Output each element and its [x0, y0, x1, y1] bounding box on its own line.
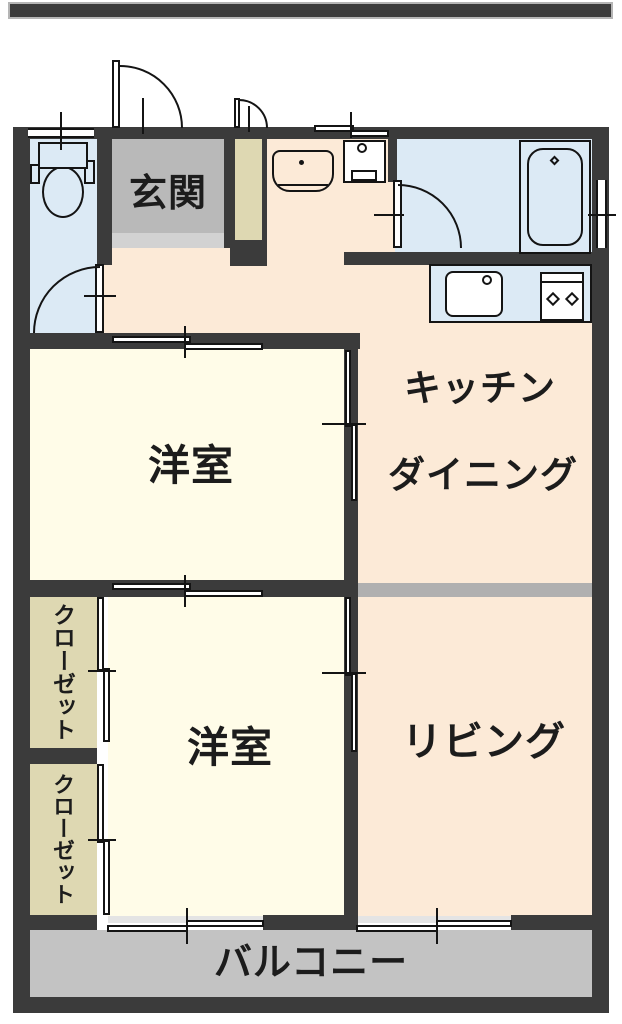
dining-label: ダイニング [388, 457, 578, 494]
living-label: リビング [402, 722, 566, 762]
bedroom1-label: 洋室 [148, 445, 234, 487]
toilet-window-tick [60, 112, 62, 150]
closet1-label: クローゼット [50, 603, 73, 741]
washroom-window-tick [350, 112, 352, 138]
bathroom-door-arc [398, 185, 461, 248]
storage-door-arc [239, 100, 267, 128]
center-door1-tick [322, 423, 366, 425]
toilet-door-arc [34, 267, 100, 333]
bathroom-window-tick [588, 214, 616, 216]
entrance-door-tick [142, 98, 144, 134]
storage-door-tick [248, 106, 250, 132]
closet1-door-tick [88, 670, 116, 672]
bedroom2-door-tick [184, 575, 186, 607]
genkan-label: 玄関 [129, 174, 207, 212]
door-swing-arcs [0, 0, 622, 1024]
closet2-door-tick [88, 839, 116, 841]
bedroom2-window-tick [186, 908, 188, 944]
living-window-tick [436, 908, 438, 944]
entrance-door-arc [120, 66, 182, 128]
floor-plan: 玄関 キッチン ダイニング 洋室 洋室 リビング クローゼット クローゼット バ… [0, 0, 622, 1024]
closet2-label: クローゼット [50, 773, 72, 905]
kitchen-label: キッチン [404, 370, 556, 407]
bedroom2-label: 洋室 [187, 727, 273, 769]
center-door2-tick [322, 672, 366, 674]
toilet-door-tick [84, 295, 116, 297]
bathroom-door-tick [374, 214, 404, 216]
balcony-label: バルコニー [214, 943, 408, 981]
bedroom1-door-tick [184, 326, 186, 358]
